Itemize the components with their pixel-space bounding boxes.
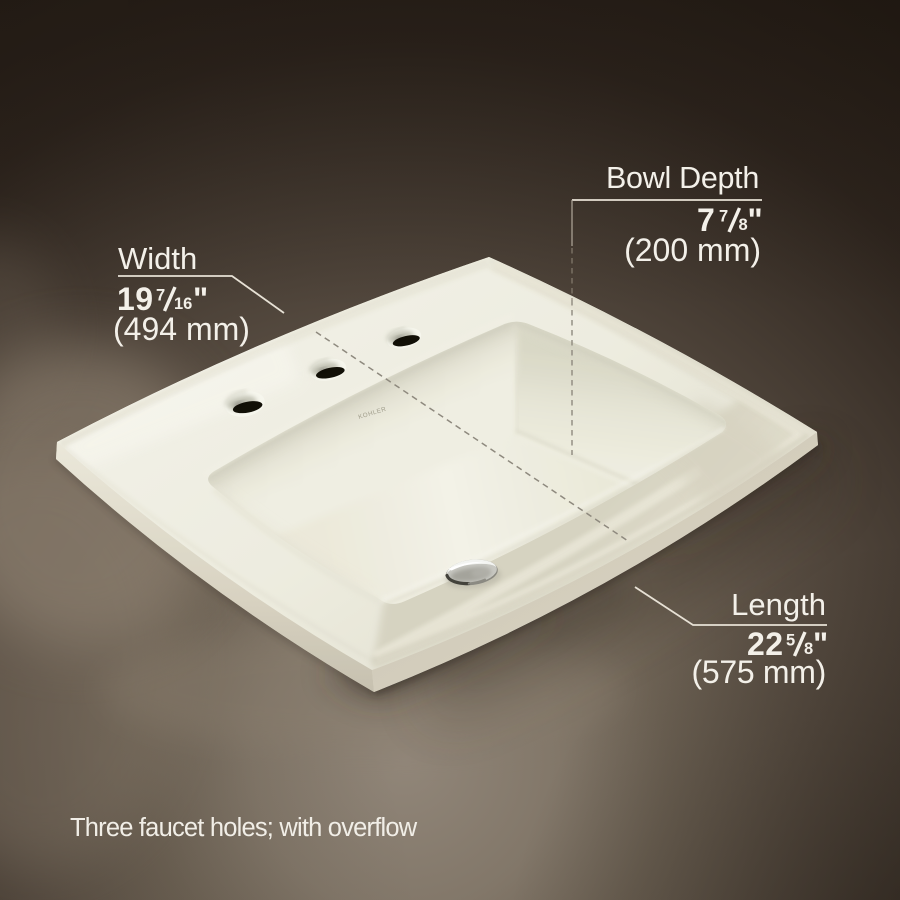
svg-text:(575 mm): (575 mm) — [691, 654, 826, 690]
svg-text:Length: Length — [731, 587, 826, 622]
svg-text:Bowl Depth: Bowl Depth — [606, 161, 759, 195]
svg-text:Width: Width — [118, 241, 197, 276]
svg-text:(494 mm): (494 mm) — [113, 311, 250, 347]
svg-text:7: 7 — [156, 287, 165, 305]
svg-text:Three faucet holes; with overf: Three faucet holes; with overflow — [70, 814, 418, 842]
svg-text:(200 mm): (200 mm) — [624, 232, 761, 268]
svg-text:7: 7 — [719, 208, 728, 226]
svg-text:5: 5 — [786, 632, 795, 650]
